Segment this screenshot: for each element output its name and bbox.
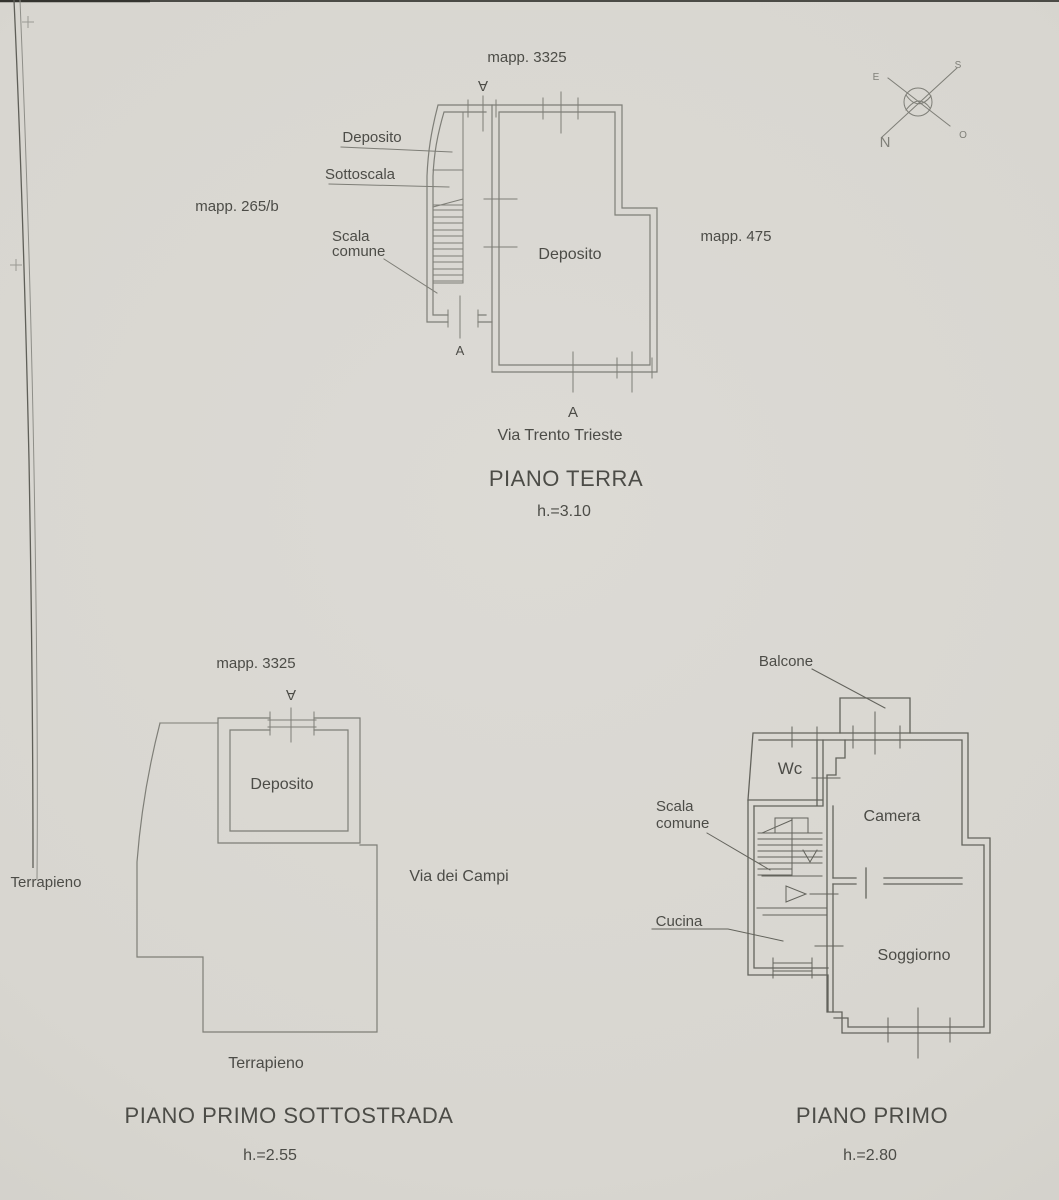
cucina-label: Cucina: [656, 913, 703, 930]
terrapieno-bottom-label: Terrapieno: [228, 1055, 304, 1072]
mapp-3325-basement-label: mapp. 3325: [216, 655, 295, 672]
piano-sottostrada-title: PIANO PRIMO SOTTOSTRADA: [125, 1103, 454, 1128]
piano-primo-title: PIANO PRIMO: [796, 1103, 948, 1128]
mapp-475-label: mapp. 475: [701, 228, 772, 245]
section-mark-a-basement: A: [286, 686, 296, 703]
wc-label: Wc: [778, 759, 803, 778]
deposito-basement-label: Deposito: [250, 776, 313, 793]
compass-n: N: [880, 134, 891, 151]
terrapieno-left-label: Terrapieno: [11, 874, 82, 891]
section-mark-a-bottom-center: A: [568, 404, 578, 421]
compass-e: E: [873, 72, 880, 83]
via-dei-campi-label: Via dei Campi: [409, 868, 508, 885]
compass-o: O: [959, 130, 967, 141]
piano-terra-plan: mapp. 3325 Deposito Sottoscala mapp. 265…: [195, 49, 771, 520]
piano-sottostrada-height: h.=2.55: [243, 1147, 297, 1164]
piano-sottostrada-plan: mapp. 3325 Deposito Terrapieno Via dei C…: [11, 655, 509, 1164]
piano-terra-title: PIANO TERRA: [489, 466, 643, 491]
deposito-small-label: Deposito: [342, 129, 401, 146]
via-trento-trieste-label: Via Trento Trieste: [497, 427, 622, 444]
deposito-main-label: Deposito: [538, 246, 601, 263]
scala-comune-ff-label-line2: comune: [656, 815, 709, 832]
floor-plan-drawing: E S N O mapp. 3325 Deposito Sottoscala m…: [0, 0, 1059, 1200]
mapp-265b-label: mapp. 265/b: [195, 198, 278, 215]
scala-comune-ff-label-line1: Scala: [656, 798, 694, 815]
soggiorno-label: Soggiorno: [878, 947, 951, 964]
piano-terra-height: h.=3.10: [537, 503, 591, 520]
section-mark-a-bottom-left: A: [456, 343, 465, 358]
section-arrow-a-first-floor: [786, 886, 838, 902]
sottoscala-label: Sottoscala: [325, 166, 396, 183]
piano-primo-height: h.=2.80: [843, 1147, 897, 1164]
scala-comune-label-line2: comune: [332, 243, 385, 260]
piano-primo-plan: Balcone Wc Camera Scala comune Cucina So…: [652, 653, 990, 1164]
compass-s: S: [955, 60, 962, 71]
balcone-label: Balcone: [759, 653, 813, 670]
section-mark-a-top: A: [478, 77, 488, 94]
compass-rose-icon: E S N O: [873, 60, 967, 151]
mapp-3325-label: mapp. 3325: [487, 49, 566, 66]
scanned-floor-plan-page: E S N O mapp. 3325 Deposito Sottoscala m…: [0, 0, 1059, 1200]
camera-label: Camera: [864, 808, 921, 825]
